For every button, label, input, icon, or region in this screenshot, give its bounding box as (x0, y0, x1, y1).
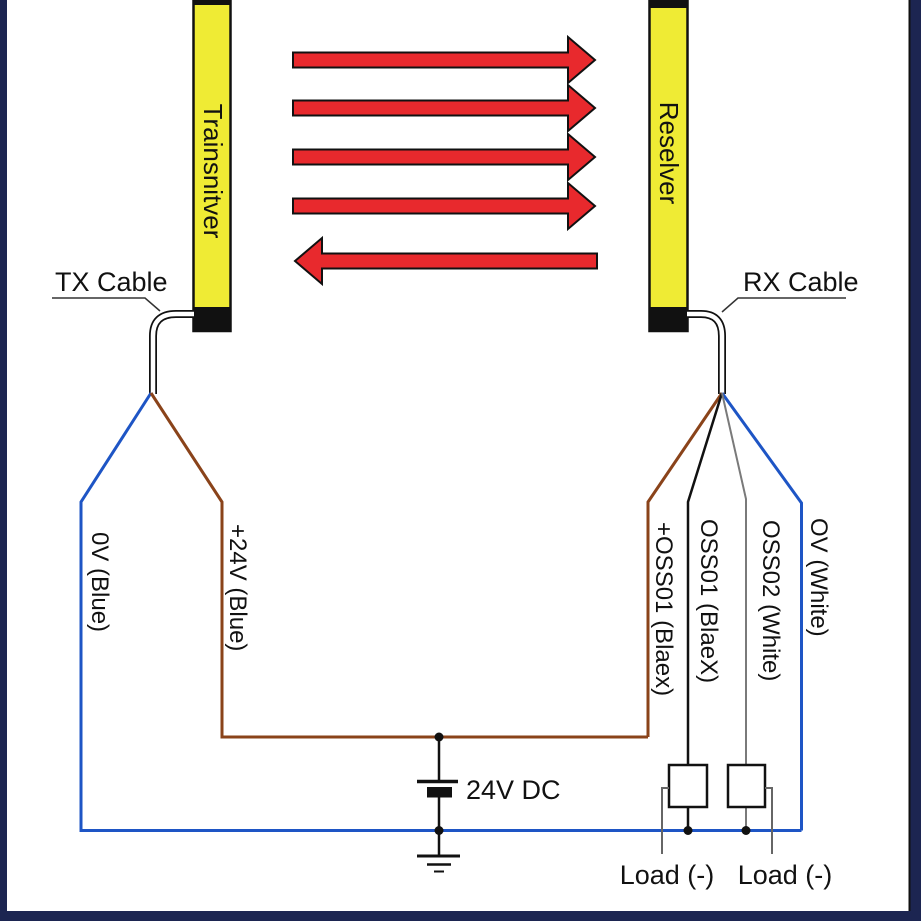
tx-cable-label: TX Cable (55, 267, 168, 297)
beam-arrows (293, 37, 597, 284)
wire-label-rx-oss02: OSS02 (White) (757, 520, 784, 681)
wire-label-tx-0v: 0V (Blue) (86, 532, 113, 632)
beam-arrow-right-icon (293, 134, 595, 180)
load2-label: Load (-) (738, 860, 833, 890)
beam-arrow-left-icon (295, 238, 597, 284)
receiver-label: Reselver (654, 102, 684, 205)
wire-label-rx-oss01-plus: +OSS01 (Blaex) (650, 522, 677, 696)
wire-label-tx-24v: +24V (Blue) (224, 524, 251, 651)
power-supply: 24V DC (417, 733, 561, 872)
beam-arrow-right-icon (293, 183, 595, 229)
rx-cable-leader-line (722, 298, 846, 312)
load1-label: Load (-) (620, 860, 715, 890)
beam-arrow-right-icon (293, 85, 595, 131)
wire-rx-oss02-gray (722, 393, 746, 765)
load1-box (669, 765, 707, 807)
wire-label-rx-oss01: OSS01 (BlaeX) (695, 519, 722, 683)
rx-cable-outline (687, 314, 722, 394)
receiver-top-cap (649, 0, 689, 8)
rx-cable-label: RX Cable (743, 267, 859, 297)
frame-right (911, 0, 921, 921)
tx-cable-core (153, 314, 194, 394)
rx-cable-callout: RX Cable (722, 267, 859, 312)
junction-dot (435, 826, 444, 835)
wire-labels: 0V (Blue) +24V (Blue) +OSS01 (Blaex) OSS… (86, 518, 832, 696)
tx-cable-callout: TX Cable (52, 267, 168, 311)
wire-label-rx-0v: OV (White) (805, 518, 832, 637)
junction-dot (742, 826, 751, 835)
load2-box (728, 765, 765, 807)
frame-right-edge (909, 0, 911, 921)
frame-left (0, 0, 7, 921)
power-supply-label: 24V DC (466, 775, 561, 805)
transmitter-bottom-cap (193, 307, 232, 331)
transmitter-bar: Trainsnitver (193, 0, 232, 331)
transmitter-label: Trainsnitver (198, 104, 228, 239)
battery-plate-negative (427, 787, 452, 798)
frame-bottom (0, 911, 921, 921)
transmitter-top-cap (193, 0, 232, 5)
tx-cable-leader-line (52, 298, 160, 311)
junction-dot (684, 826, 693, 835)
light-curtain-wiring-diagram: Trainsnitver Reselver TX Cable RX Cable (0, 0, 921, 921)
beam-arrow-right-icon (293, 37, 595, 83)
tx-cable (153, 314, 194, 394)
page-frame (0, 0, 921, 921)
receiver-bottom-cap (649, 307, 689, 331)
receiver-bar: Reselver (649, 0, 689, 331)
rx-cable (687, 314, 722, 394)
tx-cable-outline (153, 314, 194, 394)
